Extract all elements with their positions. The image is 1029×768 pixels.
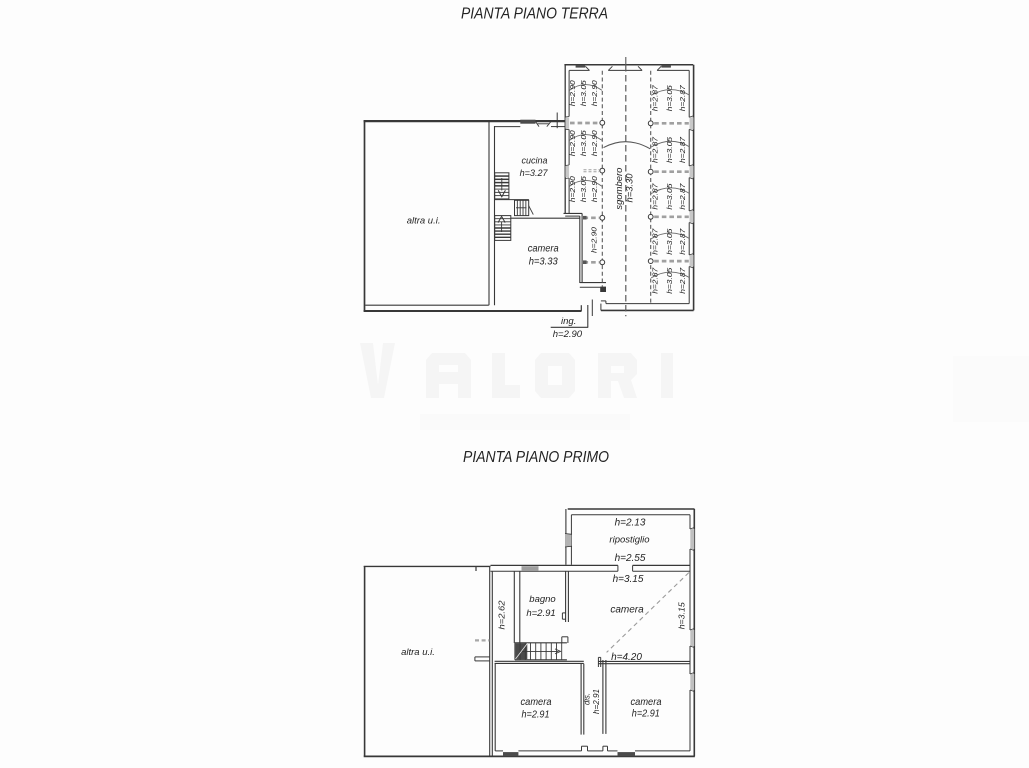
svg-text:h=2.90: h=2.90 — [568, 79, 577, 106]
svg-text:sgombero: sgombero — [614, 168, 624, 210]
svg-text:h=3.05: h=3.05 — [665, 267, 674, 294]
svg-text:h=2.90: h=2.90 — [553, 329, 583, 340]
svg-text:h=3.05: h=3.05 — [665, 228, 674, 255]
svg-text:h=2.91: h=2.91 — [591, 689, 601, 714]
svg-text:h=3.05: h=3.05 — [579, 79, 588, 106]
svg-text:PIANTA PIANO TERRA: PIANTA PIANO TERRA — [461, 5, 608, 22]
svg-text:h=2.90: h=2.90 — [568, 175, 577, 202]
svg-text:h=2.87: h=2.87 — [678, 136, 687, 163]
svg-text:h=2.90: h=2.90 — [590, 129, 599, 156]
svg-text:h=2.87: h=2.87 — [650, 267, 659, 294]
svg-text:ing.: ing. — [561, 316, 576, 327]
svg-text:h=3.15: h=3.15 — [676, 602, 686, 629]
svg-text:dis.: dis. — [582, 693, 592, 705]
svg-text:bagno: bagno — [529, 594, 555, 605]
svg-text:h=2.91: h=2.91 — [526, 608, 555, 619]
svg-text:h=2.62: h=2.62 — [497, 600, 507, 629]
svg-text:h=2.87: h=2.87 — [678, 228, 687, 255]
svg-text:h=2.91: h=2.91 — [632, 709, 660, 720]
svg-text:h=2.55: h=2.55 — [615, 553, 646, 564]
svg-text:cucina: cucina — [522, 155, 548, 166]
svg-text:h=3.05: h=3.05 — [579, 175, 588, 202]
svg-text:altra u.i.: altra u.i. — [407, 215, 441, 226]
svg-text:h=3.27: h=3.27 — [520, 168, 549, 179]
svg-text:h=2.90: h=2.90 — [590, 226, 599, 253]
svg-text:h=2.87: h=2.87 — [650, 84, 659, 111]
svg-text:h=2.90: h=2.90 — [568, 129, 577, 156]
svg-text:h=3.05: h=3.05 — [665, 84, 674, 111]
svg-text:PIANTA PIANO PRIMO: PIANTA PIANO PRIMO — [463, 449, 609, 466]
svg-text:h=2.13: h=2.13 — [615, 517, 646, 528]
svg-text:h=2.87: h=2.87 — [650, 136, 659, 163]
svg-text:h=2.90: h=2.90 — [590, 175, 599, 202]
svg-text:h=2.91: h=2.91 — [522, 709, 550, 720]
svg-text:altra u.i.: altra u.i. — [401, 647, 435, 658]
svg-text:h=2.87: h=2.87 — [678, 84, 687, 111]
svg-text:h=3.05: h=3.05 — [579, 129, 588, 156]
svg-text:camera: camera — [631, 697, 662, 708]
svg-text:h=2.87: h=2.87 — [650, 228, 659, 255]
svg-text:h=3.05: h=3.05 — [665, 136, 674, 163]
svg-text:ripostiglio: ripostiglio — [609, 534, 649, 545]
svg-text:h=3.15: h=3.15 — [613, 574, 644, 585]
svg-text:h=2.87: h=2.87 — [678, 183, 687, 210]
svg-text:h=3.30: h=3.30 — [624, 174, 634, 203]
svg-text:camera: camera — [521, 697, 552, 708]
svg-text:camera: camera — [610, 604, 644, 615]
svg-text:h=3.33: h=3.33 — [529, 257, 559, 268]
svg-text:h=2.87: h=2.87 — [678, 267, 687, 294]
svg-text:h=3.05: h=3.05 — [665, 183, 674, 210]
svg-text:h=2.87: h=2.87 — [650, 183, 659, 210]
svg-text:h=2.90: h=2.90 — [590, 79, 599, 106]
svg-text:camera: camera — [528, 243, 560, 254]
